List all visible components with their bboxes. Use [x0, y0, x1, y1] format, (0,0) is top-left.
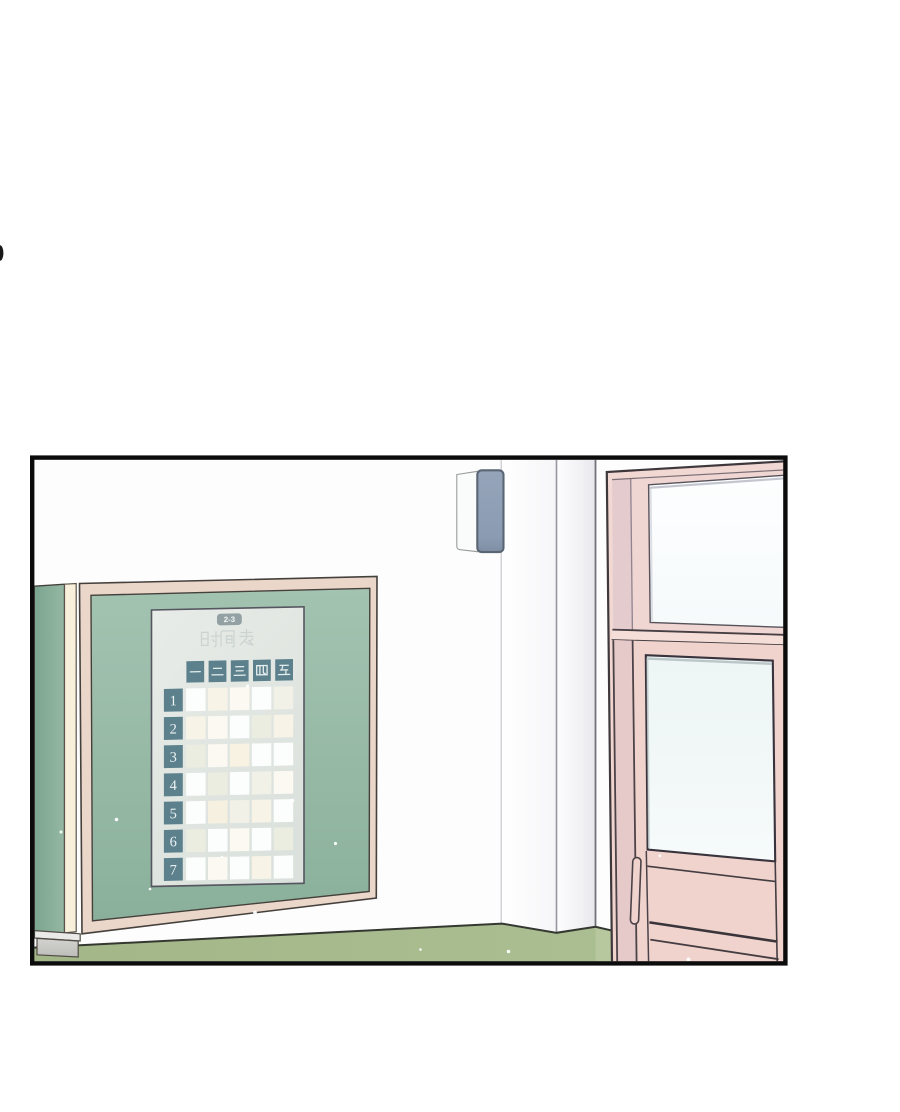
svg-text:4: 4 — [170, 778, 178, 794]
svg-text:2-3: 2-3 — [224, 615, 236, 624]
svg-text:5: 5 — [170, 806, 177, 822]
svg-text:1: 1 — [170, 693, 177, 709]
svg-text:6: 6 — [170, 834, 177, 850]
svg-text:2: 2 — [170, 721, 177, 737]
svg-text:3: 3 — [170, 750, 177, 766]
svg-text:7: 7 — [170, 862, 177, 878]
